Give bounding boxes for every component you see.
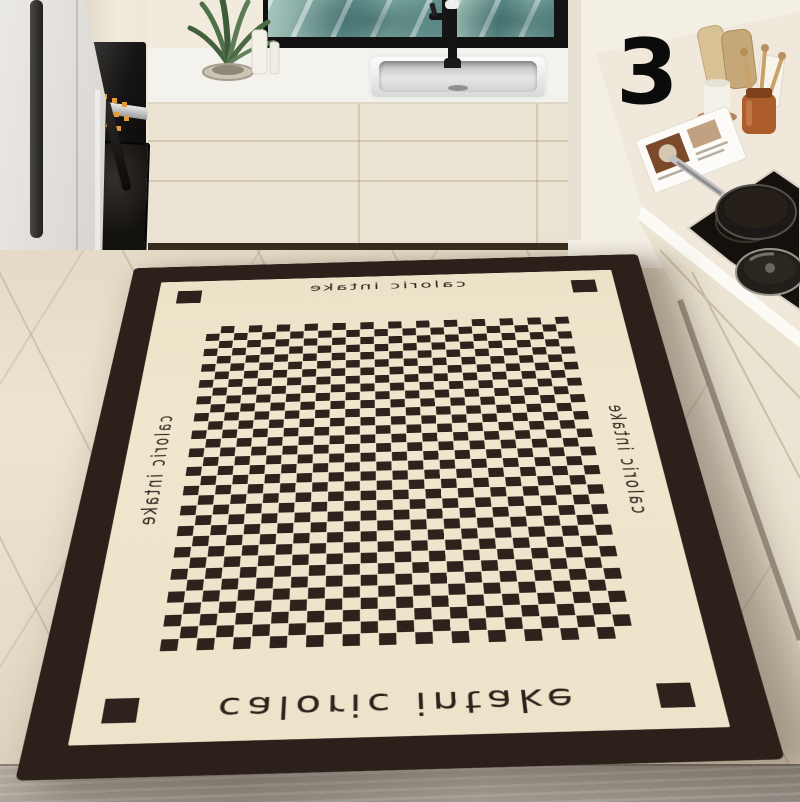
mat-text-right: caloric intake [602, 402, 652, 515]
glass-dish-inner [212, 65, 244, 75]
fridge-handle [30, 0, 43, 238]
mat-checkerboard-pattern [159, 317, 635, 652]
kitchen-mat-product-photo: { "overlay": { "variant_number": "3" }, … [0, 0, 800, 800]
mat-text-bottom: caloric intake [71, 677, 726, 730]
wall-corner-shade [568, 0, 581, 240]
kitchen-window [263, 0, 575, 52]
faucet-tip [445, 0, 459, 9]
white-bottle [252, 30, 267, 74]
glass-lid-pot [736, 249, 800, 295]
window-pane-water-view [456, 0, 554, 38]
mat-text-left: caloric intake [134, 415, 178, 529]
black-faucet [428, 0, 468, 70]
sink-drain [448, 85, 468, 91]
variant-number: 3 [616, 28, 679, 118]
faucet-base [444, 58, 461, 68]
window-pane-water-view [268, 0, 442, 38]
potted-plant-and-bottles [182, 0, 286, 90]
faucet-pipe [448, 5, 457, 62]
small-bottle [270, 42, 279, 74]
